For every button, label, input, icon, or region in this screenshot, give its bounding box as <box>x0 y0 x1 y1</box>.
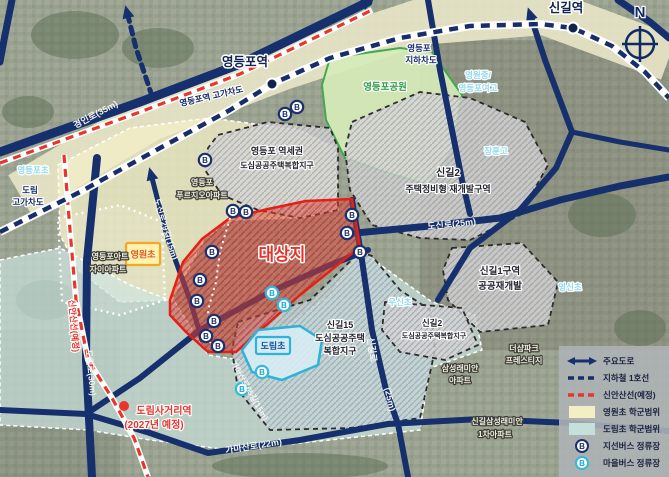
map-label: 신길삼성래미안 <box>471 416 523 426</box>
map-label: (2027년 예정) <box>124 418 183 431</box>
svg-text:B: B <box>243 208 249 217</box>
branch-bus-stop-icon: B <box>566 439 598 453</box>
legend-label: 지선버스 정류장 <box>603 440 660 452</box>
yellow-swatch-icon <box>566 406 598 418</box>
school-box: 영원초 <box>126 243 160 265</box>
svg-text:B: B <box>259 368 265 377</box>
map-label: 영등포여고 <box>458 83 497 93</box>
svg-text:B: B <box>349 211 355 220</box>
tree-patch <box>614 310 666 346</box>
legend-label: 지하철 1호선 <box>603 372 649 384</box>
map-label: 복합지구 <box>323 345 356 356</box>
village-bus-stop: B <box>266 287 278 299</box>
legend-item-major-road: 주요도로 <box>566 353 665 368</box>
legend-label: 영원초 학군범위 <box>603 406 660 418</box>
svg-text:B: B <box>209 248 215 257</box>
map-label: 신길2 <box>436 166 460 179</box>
map-label: 신길1구역 <box>480 265 520 277</box>
legend: 주요도로 지하철 1호선 신안산선(예정) 영원초 학군범위 도림초 학군범위 <box>559 346 669 477</box>
subway-station-label: 신길역 <box>549 0 584 15</box>
branch-bus-stop: B <box>212 340 224 352</box>
legend-label: 주요도로 <box>603 355 634 367</box>
svg-text:B: B <box>194 297 200 306</box>
branch-bus-stop: B <box>191 295 203 307</box>
sinansan-dash-icon <box>566 389 598 401</box>
branch-bus-stop: B <box>208 315 220 327</box>
svg-text:B: B <box>357 248 363 257</box>
tree-patch <box>568 193 636 237</box>
map-label: 1차아파트 <box>478 429 513 439</box>
map-label: 푸르지오아파트 <box>176 190 228 200</box>
map-label: 영등포공원 <box>363 81 407 93</box>
map-label: 도림사거리역 <box>136 404 191 417</box>
map-label: 신길2 <box>422 318 443 328</box>
svg-text:B: B <box>202 156 208 165</box>
branch-bus-stop: B <box>199 154 211 166</box>
map-label: 영등포 <box>407 43 431 53</box>
subway-station-label: 영등포역 <box>222 54 268 69</box>
svg-text:도림초: 도림초 <box>261 340 287 351</box>
legend-item-yeongwon-district: 영원초 학군범위 <box>566 404 665 419</box>
map-label: 지하차도 <box>405 55 436 65</box>
svg-text:B: B <box>203 332 209 341</box>
branch-bus-stop: B <box>206 246 218 258</box>
legend-item-village-bus: B 마을버스 정류장 <box>566 455 665 470</box>
subway-station-dot <box>267 79 278 90</box>
village-bus-stop: B <box>278 299 290 311</box>
legend-item-branch-bus: B 지선버스 정류장 <box>566 438 665 453</box>
tree-patch <box>31 11 119 59</box>
map-label: 영등포초 <box>17 165 48 175</box>
village-bus-stop: B <box>256 366 268 378</box>
map-label: 우신초 <box>388 297 412 307</box>
svg-text:영원초: 영원초 <box>131 249 157 260</box>
map-label: 영등포 <box>191 177 214 187</box>
branch-bus-stop: B <box>240 206 252 218</box>
subway-station-dot <box>568 23 579 34</box>
svg-text:B: B <box>197 276 203 285</box>
branch-bus-stop: B <box>354 246 366 258</box>
branch-bus-stop: B <box>279 108 291 120</box>
map-label: 대상지 <box>259 245 306 264</box>
branch-bus-stop: B <box>341 227 353 239</box>
map-label: 도심공공주택 <box>315 332 365 343</box>
map-label: 영원중/ <box>465 70 491 80</box>
branch-bus-stop: B <box>194 274 206 286</box>
tree-patch <box>2 96 54 128</box>
map-label: 고가차도 <box>12 197 43 207</box>
legend-item-sinansan-line: 신안산선(예정) <box>566 387 665 402</box>
svg-text:B: B <box>282 110 288 119</box>
legend-label: 도림초 학군범위 <box>603 423 660 435</box>
svg-text:B: B <box>281 301 287 310</box>
map-label: 도림 <box>22 185 38 195</box>
map-label: 영등포 역세권 <box>251 145 303 156</box>
major-road-arrow-icon <box>566 355 598 367</box>
map-screenshot: BBBBBBBBBBBBBBBBBB영등포역신길역영원초도림초경인로(35m)영… <box>0 0 669 477</box>
branch-bus-stop: B <box>200 330 212 342</box>
map-label: 주택정비형 재개발구역 <box>405 183 490 194</box>
map-label: 더샵파크 <box>509 343 539 353</box>
cyan-swatch-icon <box>566 423 598 435</box>
branch-bus-stop: B <box>291 101 303 113</box>
school-box: 도림초 <box>256 337 290 354</box>
village-bus-stop-icon: B <box>566 456 598 470</box>
map-label: 신길15 <box>327 319 354 330</box>
map-label: 자이아파트 <box>90 264 127 274</box>
svg-text:B: B <box>215 342 221 351</box>
legend-label: 신안산선(예정) <box>603 389 656 401</box>
svg-text:B: B <box>579 459 585 468</box>
map-label: 삼성래미안 <box>442 363 479 373</box>
svg-text:B: B <box>211 317 217 326</box>
map-label: 영신초 <box>558 282 582 292</box>
svg-text:B: B <box>230 207 236 216</box>
branch-bus-stop: B <box>227 205 239 217</box>
svg-text:B: B <box>344 229 350 238</box>
subway-dash-icon <box>566 372 598 384</box>
planned-station-dot <box>119 401 129 411</box>
map-label: 도심공공주택복합지구 <box>240 160 314 170</box>
map-label: 장훈고 <box>484 146 508 156</box>
map-label: 도심공공주택복합지구 <box>402 331 467 340</box>
map-label: 영등포아트 <box>92 251 129 261</box>
map-label: 공공재개발 <box>478 280 522 292</box>
legend-item-subway-line1: 지하철 1호선 <box>566 370 665 385</box>
svg-text:N: N <box>635 4 646 21</box>
map-label: 프레스티지 <box>506 355 543 365</box>
svg-text:B: B <box>269 289 275 298</box>
legend-item-dorim-district: 도림초 학군범위 <box>566 421 665 436</box>
svg-text:B: B <box>294 103 300 112</box>
legend-label: 마을버스 정류장 <box>603 457 660 469</box>
svg-text:B: B <box>579 442 585 451</box>
map-label: 아파트 <box>449 375 472 385</box>
branch-bus-stop: B <box>346 209 358 221</box>
